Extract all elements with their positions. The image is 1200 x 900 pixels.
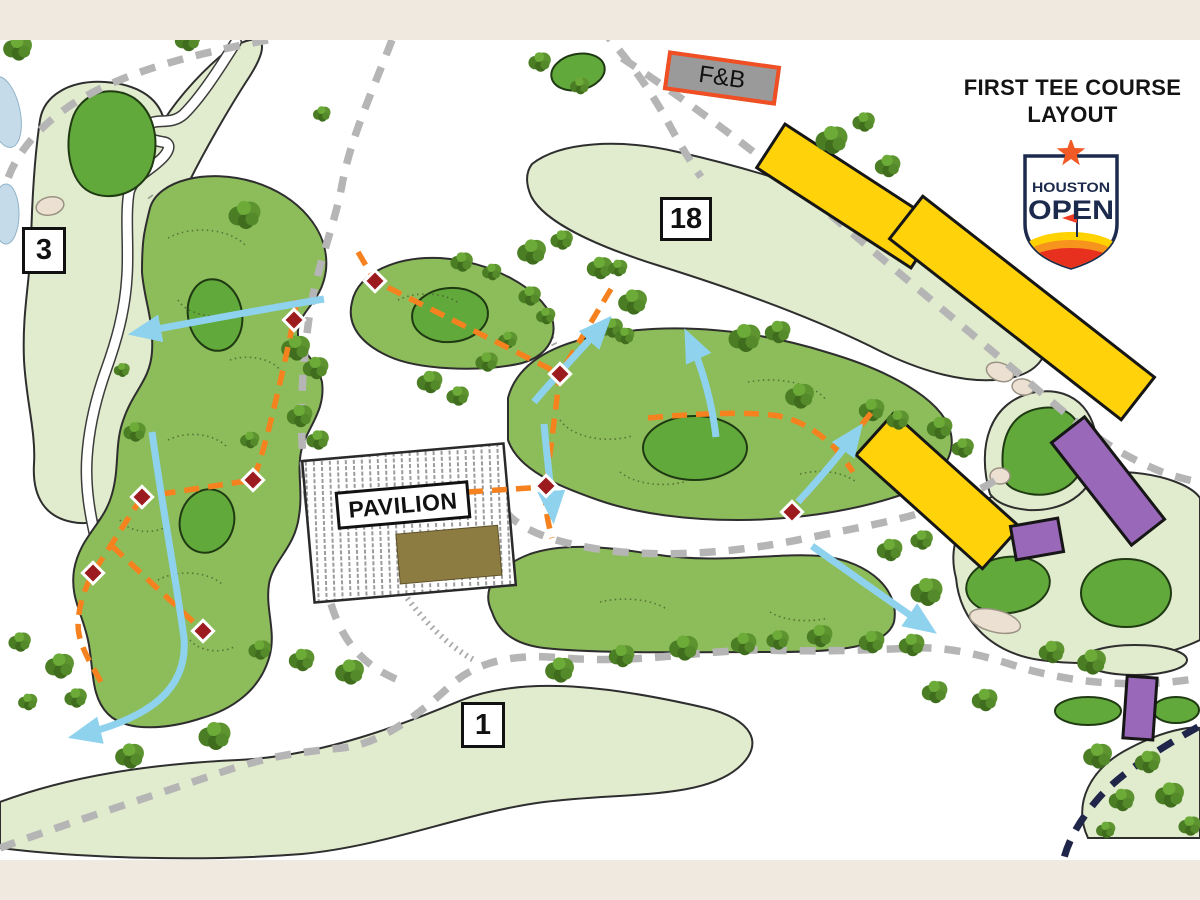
map-title: FIRST TEE COURSE LAYOUT — [950, 74, 1195, 128]
putting-green — [1055, 697, 1121, 725]
grandstand-purple-2 — [1010, 518, 1063, 560]
logo-text-houston: HOUSTON — [1032, 179, 1110, 195]
putting-green — [69, 91, 156, 196]
logo-sunset-hill — [1025, 232, 1117, 270]
putting-green — [643, 416, 747, 480]
putting-green — [1081, 559, 1171, 627]
putting-green — [1153, 697, 1199, 723]
logo-text-open: OPEN — [1028, 195, 1114, 225]
top-border-band — [0, 0, 1200, 40]
event-logo: HOUSTON OPEN — [1012, 140, 1130, 272]
hole-marker-1: 1 — [461, 702, 505, 748]
hole-number: 1 — [475, 709, 491, 742]
hole-marker-3: 3 — [22, 227, 66, 274]
hole-number: 18 — [670, 203, 702, 236]
grandstand-purple-3 — [1123, 676, 1157, 740]
hole-number: 3 — [36, 234, 52, 267]
pavilion-stage — [396, 525, 502, 584]
hole-marker-18: 18 — [660, 197, 712, 241]
map-title-line2: LAYOUT — [950, 101, 1195, 128]
map-canvas — [0, 0, 1200, 900]
map-title-line1: FIRST TEE COURSE — [950, 74, 1195, 101]
bottom-border-band — [0, 860, 1200, 900]
course-map: FIRST TEE COURSE LAYOUT HOUSTON OPEN F&B… — [0, 0, 1200, 900]
